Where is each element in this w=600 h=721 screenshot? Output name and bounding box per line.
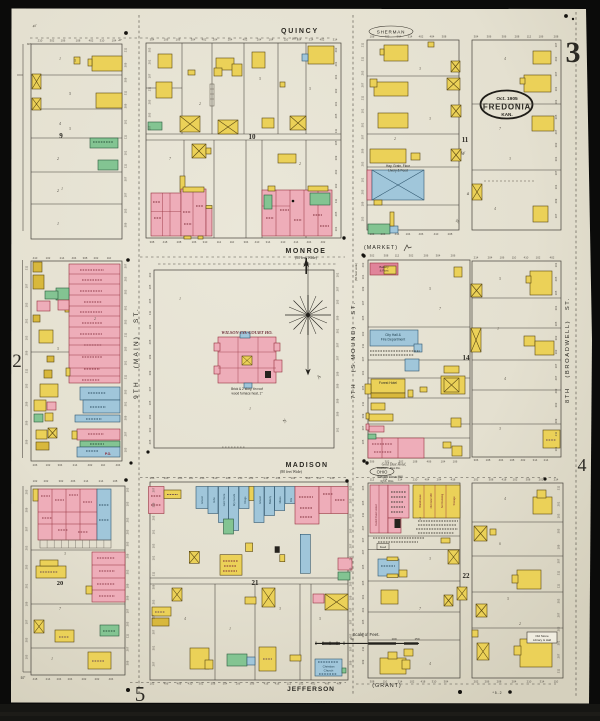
svg-text:207: 207 xyxy=(557,612,561,617)
svg-text:3: 3 xyxy=(566,36,581,69)
svg-text:109: 109 xyxy=(349,567,353,572)
svg-text:101: 101 xyxy=(361,274,365,279)
svg-text:302: 302 xyxy=(399,460,404,464)
svg-text:202: 202 xyxy=(474,680,479,684)
svg-text:311: 311 xyxy=(25,265,29,270)
svg-text:4: 4 xyxy=(59,121,61,126)
svg-text:102: 102 xyxy=(150,682,155,686)
svg-text:101: 101 xyxy=(124,360,128,365)
svg-text:1: 1 xyxy=(59,57,61,61)
svg-text:102: 102 xyxy=(291,476,296,480)
svg-text:103: 103 xyxy=(361,216,365,221)
svg-text:309: 309 xyxy=(126,595,130,600)
svg-text:301: 301 xyxy=(557,640,561,645)
svg-text:214: 214 xyxy=(99,479,104,483)
svg-text:101: 101 xyxy=(554,86,558,91)
svg-text:3: 3 xyxy=(419,67,421,71)
svg-text:414: 414 xyxy=(395,232,400,236)
svg-text:214: 214 xyxy=(46,677,51,681)
svg-text:108: 108 xyxy=(486,458,491,462)
svg-text:310: 310 xyxy=(432,680,437,684)
svg-text:(MARKET): (MARKET) xyxy=(364,245,398,251)
svg-text:MONROE: MONROE xyxy=(285,248,326,255)
svg-text:107: 107 xyxy=(148,73,152,78)
svg-text:211: 211 xyxy=(361,95,365,100)
svg-text:107: 107 xyxy=(152,614,156,619)
svg-text:2: 2 xyxy=(394,137,396,141)
svg-text:308: 308 xyxy=(211,682,216,686)
svg-text:304: 304 xyxy=(474,35,479,39)
svg-text:211: 211 xyxy=(124,332,128,337)
svg-text:5: 5 xyxy=(419,517,421,521)
svg-text:309: 309 xyxy=(336,315,340,320)
svg-text:105: 105 xyxy=(554,321,558,326)
svg-text:112: 112 xyxy=(527,35,532,39)
svg-text:109: 109 xyxy=(148,354,152,359)
svg-text:309: 309 xyxy=(25,420,29,425)
svg-text:414: 414 xyxy=(317,476,322,480)
svg-text:* 5 - 2: * 5 - 2 xyxy=(492,691,501,695)
svg-text:203: 203 xyxy=(361,262,365,267)
svg-text:205: 205 xyxy=(361,189,365,194)
svg-text:308: 308 xyxy=(150,240,155,244)
svg-text:414: 414 xyxy=(276,476,281,480)
svg-text:108: 108 xyxy=(113,479,118,483)
svg-text:Livery & Feed: Livery & Feed xyxy=(388,169,408,173)
svg-text:Not Running: Not Running xyxy=(440,493,444,508)
svg-text:308: 308 xyxy=(442,35,447,39)
svg-text:201: 201 xyxy=(25,318,29,323)
svg-text:111: 111 xyxy=(124,163,128,168)
svg-text:9TH (MAIN) ST.: 9TH (MAIN) ST. xyxy=(133,307,140,399)
svg-text:101: 101 xyxy=(152,555,156,560)
svg-text:203: 203 xyxy=(124,276,128,281)
svg-text:314: 314 xyxy=(398,680,403,684)
svg-text:418: 418 xyxy=(213,476,218,480)
svg-text:309: 309 xyxy=(124,62,128,67)
svg-text:7: 7 xyxy=(419,607,421,611)
svg-text:404: 404 xyxy=(499,458,504,462)
svg-text:309: 309 xyxy=(25,507,29,512)
svg-text:310: 310 xyxy=(100,39,105,43)
svg-text:309: 309 xyxy=(361,632,365,637)
svg-text:106: 106 xyxy=(61,39,66,43)
svg-text:418: 418 xyxy=(502,478,507,482)
svg-text:309: 309 xyxy=(25,350,29,355)
svg-text:203: 203 xyxy=(334,47,338,52)
svg-text:5: 5 xyxy=(429,287,431,291)
svg-text:2: 2 xyxy=(94,317,96,321)
svg-text:209: 209 xyxy=(25,401,29,406)
svg-text:4: 4 xyxy=(504,377,506,381)
svg-text:108: 108 xyxy=(370,35,375,39)
svg-text:57': 57' xyxy=(21,676,26,680)
svg-text:207: 207 xyxy=(336,355,340,360)
svg-text:202: 202 xyxy=(539,478,544,482)
svg-text:204: 204 xyxy=(57,677,62,681)
svg-text:311: 311 xyxy=(124,374,128,379)
svg-text:2: 2 xyxy=(12,351,22,372)
svg-text:Forest Hotel: Forest Hotel xyxy=(379,381,397,385)
svg-text:205: 205 xyxy=(334,113,338,118)
svg-text:301: 301 xyxy=(554,305,558,310)
svg-text:307: 307 xyxy=(124,176,128,181)
svg-text:406: 406 xyxy=(419,232,424,236)
svg-text:302: 302 xyxy=(59,479,64,483)
svg-text:201: 201 xyxy=(334,61,338,66)
svg-text:307: 307 xyxy=(557,558,561,563)
svg-text:209: 209 xyxy=(126,553,130,558)
svg-text:301: 301 xyxy=(361,594,365,599)
svg-text:101: 101 xyxy=(334,101,338,106)
svg-text:309: 309 xyxy=(361,148,365,153)
svg-text:Gold Dust Hotel: Gold Dust Hotel xyxy=(374,504,378,526)
svg-text:208: 208 xyxy=(554,35,559,39)
svg-text:14: 14 xyxy=(463,354,471,362)
svg-text:112: 112 xyxy=(395,254,400,258)
svg-text:205: 205 xyxy=(148,339,152,344)
svg-text:112: 112 xyxy=(287,682,292,686)
svg-text:4: 4 xyxy=(578,455,587,475)
svg-text:105: 105 xyxy=(554,290,558,295)
svg-text:Grocer: Grocer xyxy=(200,496,204,504)
svg-text:205: 205 xyxy=(25,564,29,569)
svg-text:111: 111 xyxy=(334,128,338,133)
svg-text:206: 206 xyxy=(424,254,429,258)
svg-text:110: 110 xyxy=(383,680,388,684)
svg-text:105: 105 xyxy=(126,487,130,492)
svg-text:303: 303 xyxy=(554,335,558,340)
svg-text:311: 311 xyxy=(25,368,29,373)
svg-text:410: 410 xyxy=(255,240,260,244)
svg-text:305: 305 xyxy=(361,315,365,320)
svg-text:102: 102 xyxy=(33,479,38,483)
svg-text:8TH (BROADWELL) ST.: 8TH (BROADWELL) ST. xyxy=(565,297,571,403)
svg-text:418: 418 xyxy=(33,677,38,681)
svg-text:1: 1 xyxy=(179,297,181,301)
svg-text:311: 311 xyxy=(361,343,365,348)
svg-text:203: 203 xyxy=(152,599,156,604)
svg-text:105: 105 xyxy=(361,564,365,569)
svg-text:309: 309 xyxy=(148,370,152,375)
svg-text:105: 105 xyxy=(126,501,130,506)
svg-text:208: 208 xyxy=(515,35,520,39)
svg-text:301: 301 xyxy=(124,401,128,406)
svg-text:305: 305 xyxy=(554,114,558,119)
svg-text:307: 307 xyxy=(349,513,353,518)
svg-text:303: 303 xyxy=(148,47,152,52)
svg-text:Library & Hall: Library & Hall xyxy=(533,638,551,642)
svg-text:205: 205 xyxy=(557,626,561,631)
svg-text:111: 111 xyxy=(148,310,152,315)
svg-text:106: 106 xyxy=(500,256,505,260)
svg-text:303: 303 xyxy=(124,289,128,294)
svg-text:214: 214 xyxy=(544,458,549,462)
svg-text:307: 307 xyxy=(25,526,29,531)
svg-text:404: 404 xyxy=(109,677,114,681)
svg-text:308: 308 xyxy=(226,476,231,480)
svg-text:11: 11 xyxy=(462,136,469,144)
svg-text:418: 418 xyxy=(275,682,280,686)
svg-text:207: 207 xyxy=(152,661,156,666)
svg-text:106: 106 xyxy=(539,35,544,39)
svg-text:5: 5 xyxy=(135,682,146,706)
svg-text:109: 109 xyxy=(349,595,353,600)
svg-text:205: 205 xyxy=(148,439,152,444)
svg-text:309: 309 xyxy=(152,502,156,507)
svg-text:311: 311 xyxy=(361,512,365,517)
svg-text:10: 10 xyxy=(249,133,257,141)
svg-text:314: 314 xyxy=(408,35,413,39)
svg-text:406: 406 xyxy=(325,682,330,686)
svg-text:103: 103 xyxy=(361,331,365,336)
svg-text:Dry Goods: Dry Goods xyxy=(232,493,236,506)
svg-text:205: 205 xyxy=(152,515,156,520)
svg-text:203: 203 xyxy=(334,169,338,174)
svg-text:205: 205 xyxy=(126,529,130,534)
svg-text:7: 7 xyxy=(439,307,441,311)
svg-text:Old Grist Mill: Old Grist Mill xyxy=(429,493,433,508)
svg-text:203: 203 xyxy=(148,272,152,277)
svg-text:105: 105 xyxy=(25,654,29,659)
svg-text:308: 308 xyxy=(370,680,375,684)
svg-text:208: 208 xyxy=(177,240,182,244)
svg-text:2: 2 xyxy=(199,102,201,106)
svg-text:203: 203 xyxy=(126,517,130,522)
svg-text:307: 307 xyxy=(148,386,152,391)
svg-text:104: 104 xyxy=(441,460,446,464)
svg-text:307: 307 xyxy=(554,71,558,76)
svg-text:410: 410 xyxy=(434,232,439,236)
svg-text:202: 202 xyxy=(44,479,49,483)
svg-text:203: 203 xyxy=(349,498,353,503)
svg-text:306: 306 xyxy=(250,682,255,686)
svg-text:307: 307 xyxy=(349,646,353,651)
svg-text:307: 307 xyxy=(361,356,365,361)
svg-text:202: 202 xyxy=(249,476,254,480)
svg-text:7TH (S.MOUND) ST.: 7TH (S.MOUND) ST. xyxy=(351,301,357,399)
svg-text:103: 103 xyxy=(25,335,29,340)
svg-text:204: 204 xyxy=(383,478,388,482)
svg-text:308: 308 xyxy=(83,256,88,260)
svg-text:Bakery: Bakery xyxy=(268,495,272,504)
svg-text:301: 301 xyxy=(336,328,340,333)
svg-text:406: 406 xyxy=(177,682,182,686)
svg-text:208: 208 xyxy=(497,680,502,684)
svg-text:210: 210 xyxy=(527,680,532,684)
svg-text:206: 206 xyxy=(33,463,38,467)
svg-text:111: 111 xyxy=(126,633,130,638)
svg-text:309: 309 xyxy=(361,659,365,664)
svg-text:107: 107 xyxy=(554,42,558,47)
svg-text:2: 2 xyxy=(299,162,301,166)
svg-text:100: 100 xyxy=(391,637,396,641)
svg-text:305: 305 xyxy=(25,637,29,642)
svg-text:307: 307 xyxy=(349,619,353,624)
svg-text:80′: 80′ xyxy=(27,42,32,46)
svg-text:301: 301 xyxy=(554,156,558,161)
svg-text:103: 103 xyxy=(334,88,338,93)
svg-text:106: 106 xyxy=(192,240,197,244)
svg-text:20: 20 xyxy=(57,580,64,587)
svg-text:310: 310 xyxy=(203,240,208,244)
svg-text:211: 211 xyxy=(124,47,128,52)
svg-text:202: 202 xyxy=(82,677,87,681)
svg-text:Fire Department: Fire Department xyxy=(381,338,406,342)
svg-text:203: 203 xyxy=(361,70,365,75)
svg-text:KAN.: KAN. xyxy=(501,112,512,117)
svg-text:204: 204 xyxy=(437,478,442,482)
svg-text:301: 301 xyxy=(152,645,156,650)
svg-text:107: 107 xyxy=(349,633,353,638)
svg-text:JEFFERSON: JEFFERSON xyxy=(287,686,335,693)
svg-text:& Post: & Post xyxy=(380,269,389,273)
svg-text:Church: Church xyxy=(324,669,334,673)
svg-text:306: 306 xyxy=(487,35,492,39)
svg-text:201: 201 xyxy=(25,583,29,588)
svg-text:211: 211 xyxy=(148,86,152,91)
svg-text:101: 101 xyxy=(336,272,340,277)
svg-text:110: 110 xyxy=(512,256,517,260)
svg-text:309: 309 xyxy=(124,77,128,82)
svg-text:6: 6 xyxy=(499,542,501,546)
svg-text:214: 214 xyxy=(554,478,559,482)
svg-text:402: 402 xyxy=(89,39,94,43)
svg-text:309: 309 xyxy=(336,383,340,388)
svg-text:2: 2 xyxy=(57,156,59,161)
svg-text:306: 306 xyxy=(370,460,375,464)
svg-text:205: 205 xyxy=(554,276,558,281)
svg-text:314: 314 xyxy=(333,38,338,42)
svg-text:103: 103 xyxy=(25,302,29,307)
svg-text:107: 107 xyxy=(148,125,152,130)
svg-text:112: 112 xyxy=(370,478,375,482)
svg-text:QUINCY: QUINCY xyxy=(281,28,319,35)
svg-text:305: 305 xyxy=(126,541,130,546)
svg-text:City Hall &: City Hall & xyxy=(385,333,402,337)
svg-text:309: 309 xyxy=(152,584,156,589)
svg-text:102: 102 xyxy=(513,478,518,482)
svg-text:308: 308 xyxy=(164,476,169,480)
svg-text:201: 201 xyxy=(148,59,152,64)
svg-text:211: 211 xyxy=(361,42,365,47)
svg-text:Hdw: Hdw xyxy=(212,497,216,502)
svg-text:102: 102 xyxy=(46,463,51,467)
svg-text:314: 314 xyxy=(398,478,403,482)
svg-text:214: 214 xyxy=(60,256,65,260)
svg-text:308: 308 xyxy=(489,478,494,482)
svg-text:303: 303 xyxy=(554,142,558,147)
svg-text:205: 205 xyxy=(349,581,353,586)
svg-text:303: 303 xyxy=(124,319,128,324)
svg-text:108: 108 xyxy=(510,458,515,462)
svg-text:203: 203 xyxy=(349,485,353,490)
svg-text:5: 5 xyxy=(69,91,71,96)
svg-text:207: 207 xyxy=(124,431,128,436)
svg-text:108: 108 xyxy=(413,460,418,464)
svg-text:309: 309 xyxy=(126,660,130,665)
svg-text:Scale of Feet.: Scale of Feet. xyxy=(352,632,379,637)
svg-text:Boarders - Rest Rm.: Boarders - Rest Rm. xyxy=(377,466,401,470)
svg-text:101: 101 xyxy=(554,184,558,189)
svg-text:4: 4 xyxy=(429,662,431,666)
svg-text:214: 214 xyxy=(474,256,479,260)
svg-text:310: 310 xyxy=(238,476,243,480)
svg-text:303: 303 xyxy=(126,569,130,574)
svg-text:304: 304 xyxy=(223,682,228,686)
svg-text:414: 414 xyxy=(294,240,299,244)
svg-text:103: 103 xyxy=(334,183,338,188)
svg-text:7: 7 xyxy=(59,607,61,611)
svg-text:106: 106 xyxy=(236,682,241,686)
svg-text:418: 418 xyxy=(421,680,426,684)
svg-text:309: 309 xyxy=(349,660,353,665)
svg-text:107: 107 xyxy=(554,170,558,175)
svg-text:205: 205 xyxy=(25,489,29,494)
svg-text:107: 107 xyxy=(124,192,128,197)
svg-text:304: 304 xyxy=(444,680,449,684)
svg-text:111: 111 xyxy=(334,198,338,203)
svg-text:214: 214 xyxy=(73,463,78,467)
svg-text:101: 101 xyxy=(124,119,128,124)
svg-text:302: 302 xyxy=(409,254,414,258)
svg-text:307: 307 xyxy=(124,263,128,268)
svg-text:103: 103 xyxy=(148,414,152,419)
svg-text:210: 210 xyxy=(413,478,418,482)
svg-text:Brick & 2 story, tin roof: Brick & 2 story, tin roof xyxy=(231,387,263,391)
svg-text:204: 204 xyxy=(488,256,493,260)
svg-text:302: 302 xyxy=(385,460,390,464)
svg-text:402: 402 xyxy=(385,35,390,39)
svg-text:3: 3 xyxy=(74,58,76,63)
svg-text:404: 404 xyxy=(430,35,435,39)
svg-text:Storage: Storage xyxy=(452,496,456,506)
svg-text:112: 112 xyxy=(217,240,222,244)
svg-text:(80 feet wide): (80 feet wide) xyxy=(354,263,358,281)
svg-text:1: 1 xyxy=(51,657,53,661)
svg-text:1: 1 xyxy=(57,221,59,226)
svg-text:305: 305 xyxy=(148,112,152,117)
svg-text:202: 202 xyxy=(95,677,100,681)
svg-text:109: 109 xyxy=(148,324,152,329)
svg-text:Drs: Drs xyxy=(289,497,293,502)
svg-text:305: 305 xyxy=(124,389,128,394)
svg-text:205: 205 xyxy=(334,211,338,216)
svg-text:305: 305 xyxy=(557,528,561,533)
svg-text:1: 1 xyxy=(249,407,251,411)
svg-text:211: 211 xyxy=(554,431,558,436)
svg-text:105: 105 xyxy=(336,299,340,304)
svg-text:4: 4 xyxy=(494,207,496,211)
svg-text:311: 311 xyxy=(557,570,561,575)
svg-text:5: 5 xyxy=(57,347,59,351)
svg-text:109: 109 xyxy=(361,286,365,291)
svg-text:2: 2 xyxy=(519,622,521,626)
svg-text:307: 307 xyxy=(361,537,365,542)
svg-text:108: 108 xyxy=(76,39,81,43)
svg-text:110: 110 xyxy=(554,680,559,684)
svg-text:109: 109 xyxy=(361,201,365,206)
svg-text:105: 105 xyxy=(361,385,365,390)
svg-text:209: 209 xyxy=(554,198,558,203)
svg-text:150: 150 xyxy=(414,637,419,641)
svg-text:Grocer: Grocer xyxy=(258,496,262,504)
svg-text:102: 102 xyxy=(46,256,51,260)
svg-text:210: 210 xyxy=(281,240,286,244)
svg-text:402: 402 xyxy=(321,240,326,244)
svg-text:305: 305 xyxy=(361,485,365,490)
svg-text:22: 22 xyxy=(463,572,471,580)
